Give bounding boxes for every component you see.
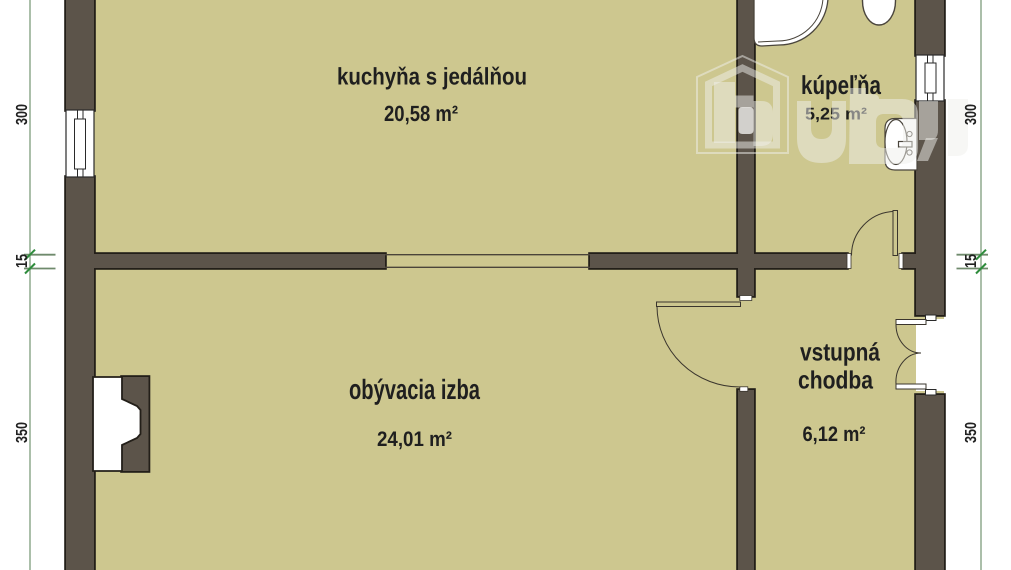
svg-text:24,01 m²: 24,01 m² (377, 428, 452, 451)
svg-text:350: 350 (14, 422, 31, 443)
svg-text:6,12 m²: 6,12 m² (803, 423, 866, 446)
svg-text:20,58 m²: 20,58 m² (384, 101, 458, 126)
svg-text:kuchyňa s jedálňou: kuchyňa s jedálňou (337, 64, 527, 91)
svg-text:vstupná: vstupná (800, 339, 880, 367)
svg-text:300: 300 (14, 104, 31, 125)
svg-text:obývacia izba: obývacia izba (349, 374, 480, 405)
svg-text:350: 350 (963, 422, 980, 443)
svg-text:chodba: chodba (798, 367, 874, 395)
svg-text:300: 300 (963, 104, 980, 125)
svg-text:15: 15 (963, 254, 980, 268)
svg-text:15: 15 (14, 254, 31, 268)
